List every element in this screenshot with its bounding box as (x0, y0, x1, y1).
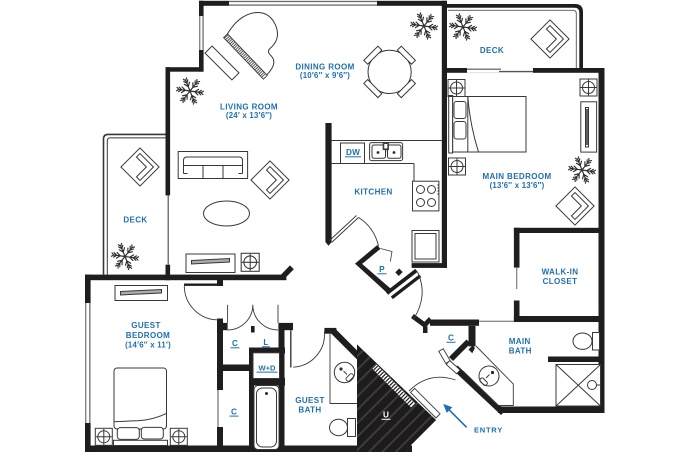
svg-text:MAIN: MAIN (509, 337, 531, 346)
svg-text:(13′6″ x 13′6″): (13′6″ x 13′6″) (490, 181, 545, 190)
svg-text:BATH: BATH (298, 405, 321, 414)
svg-text:U: U (383, 411, 389, 420)
svg-text:C: C (231, 407, 237, 416)
svg-text:C: C (448, 334, 454, 343)
svg-text:P: P (379, 265, 385, 274)
svg-text:L: L (263, 338, 268, 347)
svg-text:BEDROOM: BEDROOM (126, 331, 170, 340)
svg-text:DW: DW (346, 148, 360, 157)
svg-text:ENTRY: ENTRY (474, 425, 503, 434)
svg-text:KITCHEN: KITCHEN (354, 188, 392, 197)
svg-text:(14′6″ x 11′): (14′6″ x 11′) (125, 341, 171, 350)
svg-text:CLOSET: CLOSET (543, 277, 578, 286)
svg-text:WALK-IN: WALK-IN (542, 268, 579, 277)
svg-text:MAIN BEDROOM: MAIN BEDROOM (482, 172, 551, 181)
svg-text:DECK: DECK (123, 215, 147, 224)
svg-text:BATH: BATH (509, 346, 532, 355)
svg-text:GUEST: GUEST (295, 396, 324, 405)
svg-text:GUEST: GUEST (131, 321, 160, 330)
svg-text:C: C (232, 339, 238, 348)
svg-text:(10′6″ x 9′6″): (10′6″ x 9′6″) (300, 71, 350, 80)
svg-text:(24′ x 13′6″): (24′ x 13′6″) (226, 111, 272, 120)
svg-text:W+D: W+D (258, 363, 276, 372)
svg-text:DECK: DECK (480, 46, 504, 55)
